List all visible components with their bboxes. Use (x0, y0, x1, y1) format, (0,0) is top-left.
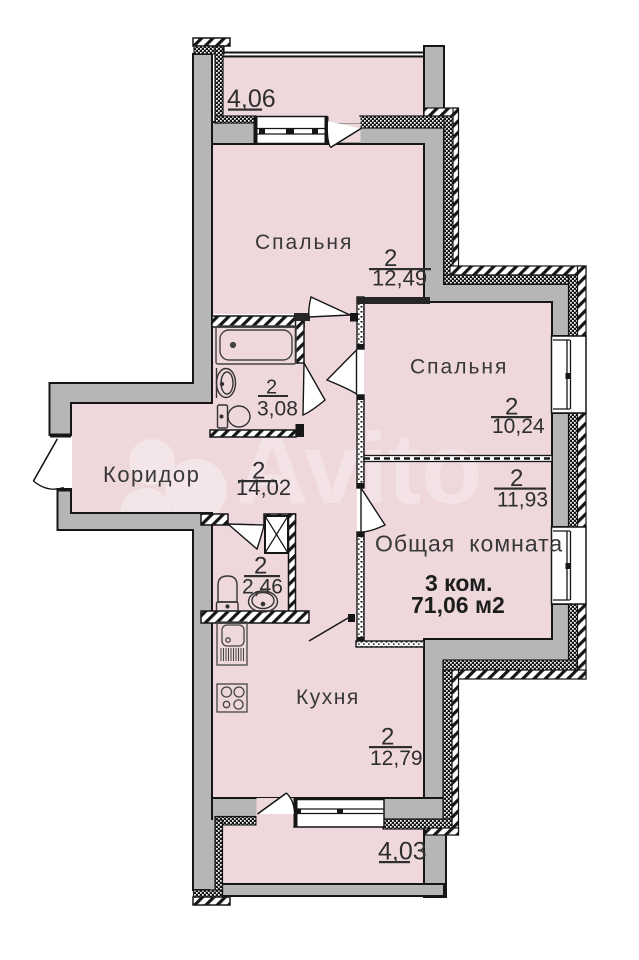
svg-text:12,79: 12,79 (370, 747, 423, 770)
svg-text:Спальня: Спальня (410, 356, 508, 379)
svg-text:Общаякомната: Общаякомната (375, 531, 563, 557)
svg-text:3,08: 3,08 (257, 398, 298, 421)
svg-text:Кухня: Кухня (296, 686, 360, 709)
svg-text:12,49: 12,49 (372, 266, 427, 291)
svg-text:14,02: 14,02 (236, 475, 291, 500)
svg-text:Спальня: Спальня (255, 231, 353, 254)
svg-text:2,46: 2,46 (242, 576, 283, 599)
svg-text:71,06 м2: 71,06 м2 (411, 592, 505, 618)
svg-text:Коридор: Коридор (103, 462, 200, 487)
svg-text:10,24: 10,24 (492, 415, 545, 438)
svg-text:11,93: 11,93 (497, 489, 548, 512)
